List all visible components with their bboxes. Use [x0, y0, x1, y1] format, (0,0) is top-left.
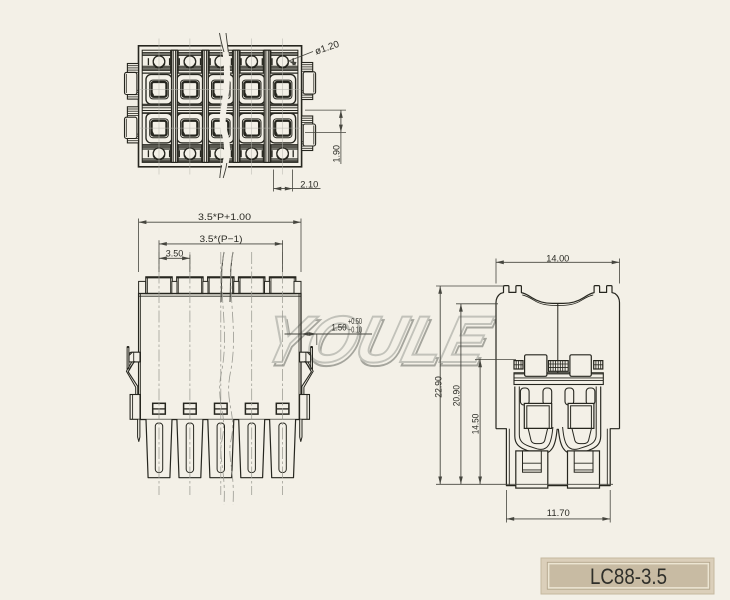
- svg-text:3.5*(P−1): 3.5*(P−1): [200, 234, 243, 245]
- svg-text:22.90: 22.90: [433, 376, 444, 398]
- svg-text:20.90: 20.90: [451, 385, 462, 406]
- svg-text:−0.10: −0.10: [348, 325, 362, 334]
- svg-text:LC88-3.5: LC88-3.5: [590, 564, 667, 589]
- svg-text:YOULE: YOULE: [256, 303, 499, 377]
- svg-text:1.90: 1.90: [331, 145, 342, 163]
- svg-text:14.00: 14.00: [546, 254, 569, 265]
- svg-text:11.70: 11.70: [547, 508, 570, 519]
- svg-text:1.50: 1.50: [332, 323, 347, 334]
- svg-text:2.10: 2.10: [300, 180, 318, 191]
- svg-text:3.5*P+1.00: 3.5*P+1.00: [198, 212, 251, 223]
- svg-text:3.50: 3.50: [166, 248, 184, 259]
- svg-text:14.50: 14.50: [471, 414, 482, 435]
